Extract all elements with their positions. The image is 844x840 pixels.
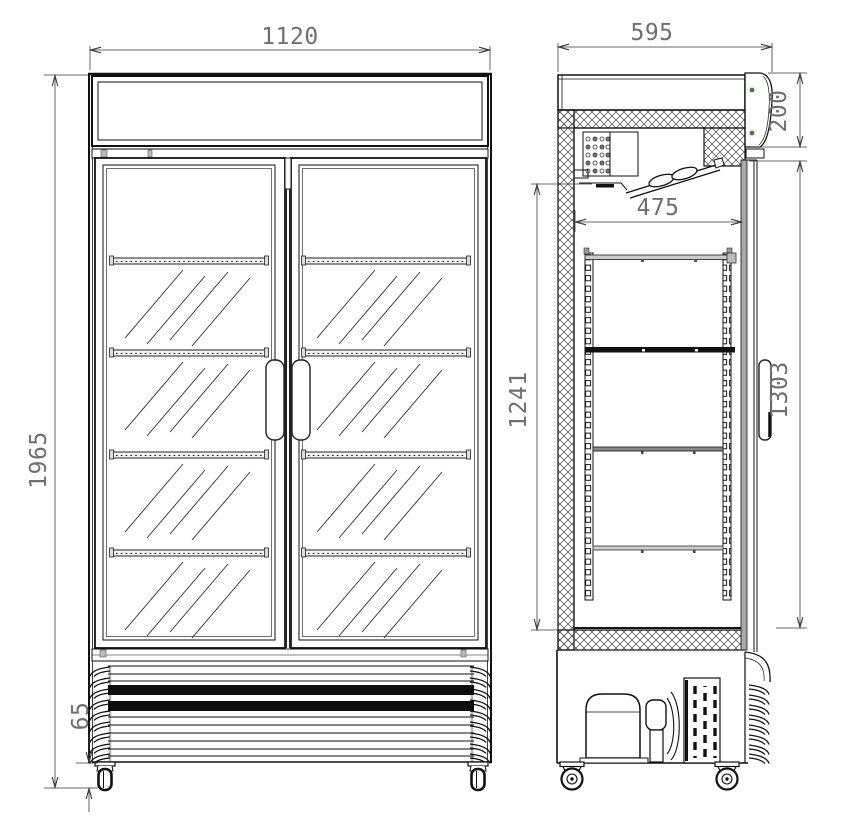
dim-door-height: 1303: [749, 161, 807, 628]
dim-door-height-label: 1303: [767, 361, 793, 418]
front-casters: [95, 762, 488, 790]
shelf-dark: [585, 347, 735, 353]
side-shelves: [585, 253, 736, 553]
side-top-band: [558, 75, 745, 110]
drawing-sheet: 1120 1965 65 595 200: [0, 0, 844, 840]
dim-depth-label: 595: [630, 20, 673, 46]
front-bottom-band: [92, 649, 488, 661]
machine-compartment: [557, 650, 770, 764]
front-header-lightbox: [92, 76, 488, 146]
fan-blade-icon: [648, 165, 699, 190]
hinge-screw-icon: [750, 131, 755, 136]
front-left-door: [95, 158, 285, 648]
side-casters: [560, 762, 739, 790]
dim-base-height-label: 65: [68, 702, 94, 731]
front-view: [88, 73, 492, 790]
front-top-band: [92, 149, 488, 158]
evaporator-unit: [574, 132, 724, 198]
hinge-plate: [746, 149, 764, 158]
front-louvre-grille: [90, 666, 490, 764]
dim-interior-height-label: 1241: [506, 371, 532, 428]
dim-interior-depth-label: 475: [636, 195, 679, 221]
hinge-screw-icon: [750, 88, 755, 93]
dim-depth: 595: [558, 20, 772, 72]
condenser: [684, 678, 720, 763]
dim-interior-height: 1241: [506, 184, 592, 630]
fan-motor: [646, 692, 679, 762]
dim-overall-height-label: 1965: [26, 431, 52, 488]
dim-front-width-label: 1120: [261, 24, 318, 50]
dim-front-width: 1120: [90, 24, 490, 70]
dim-canopy-height-label: 200: [766, 89, 792, 132]
dim-interior-depth: 475: [575, 195, 742, 232]
front-right-door: [291, 158, 486, 648]
side-view: [557, 73, 772, 790]
door-handles: [266, 360, 310, 440]
compressor: [580, 694, 648, 763]
front-center-mullion: [285, 158, 292, 648]
technical-drawing: 1120 1965 65 595 200: [0, 0, 844, 840]
dim-base-height: 65: [68, 702, 98, 812]
rear-vent-fins: [749, 685, 769, 764]
dim-overall-height: 1965: [26, 75, 98, 788]
door-glass: [741, 160, 747, 650]
